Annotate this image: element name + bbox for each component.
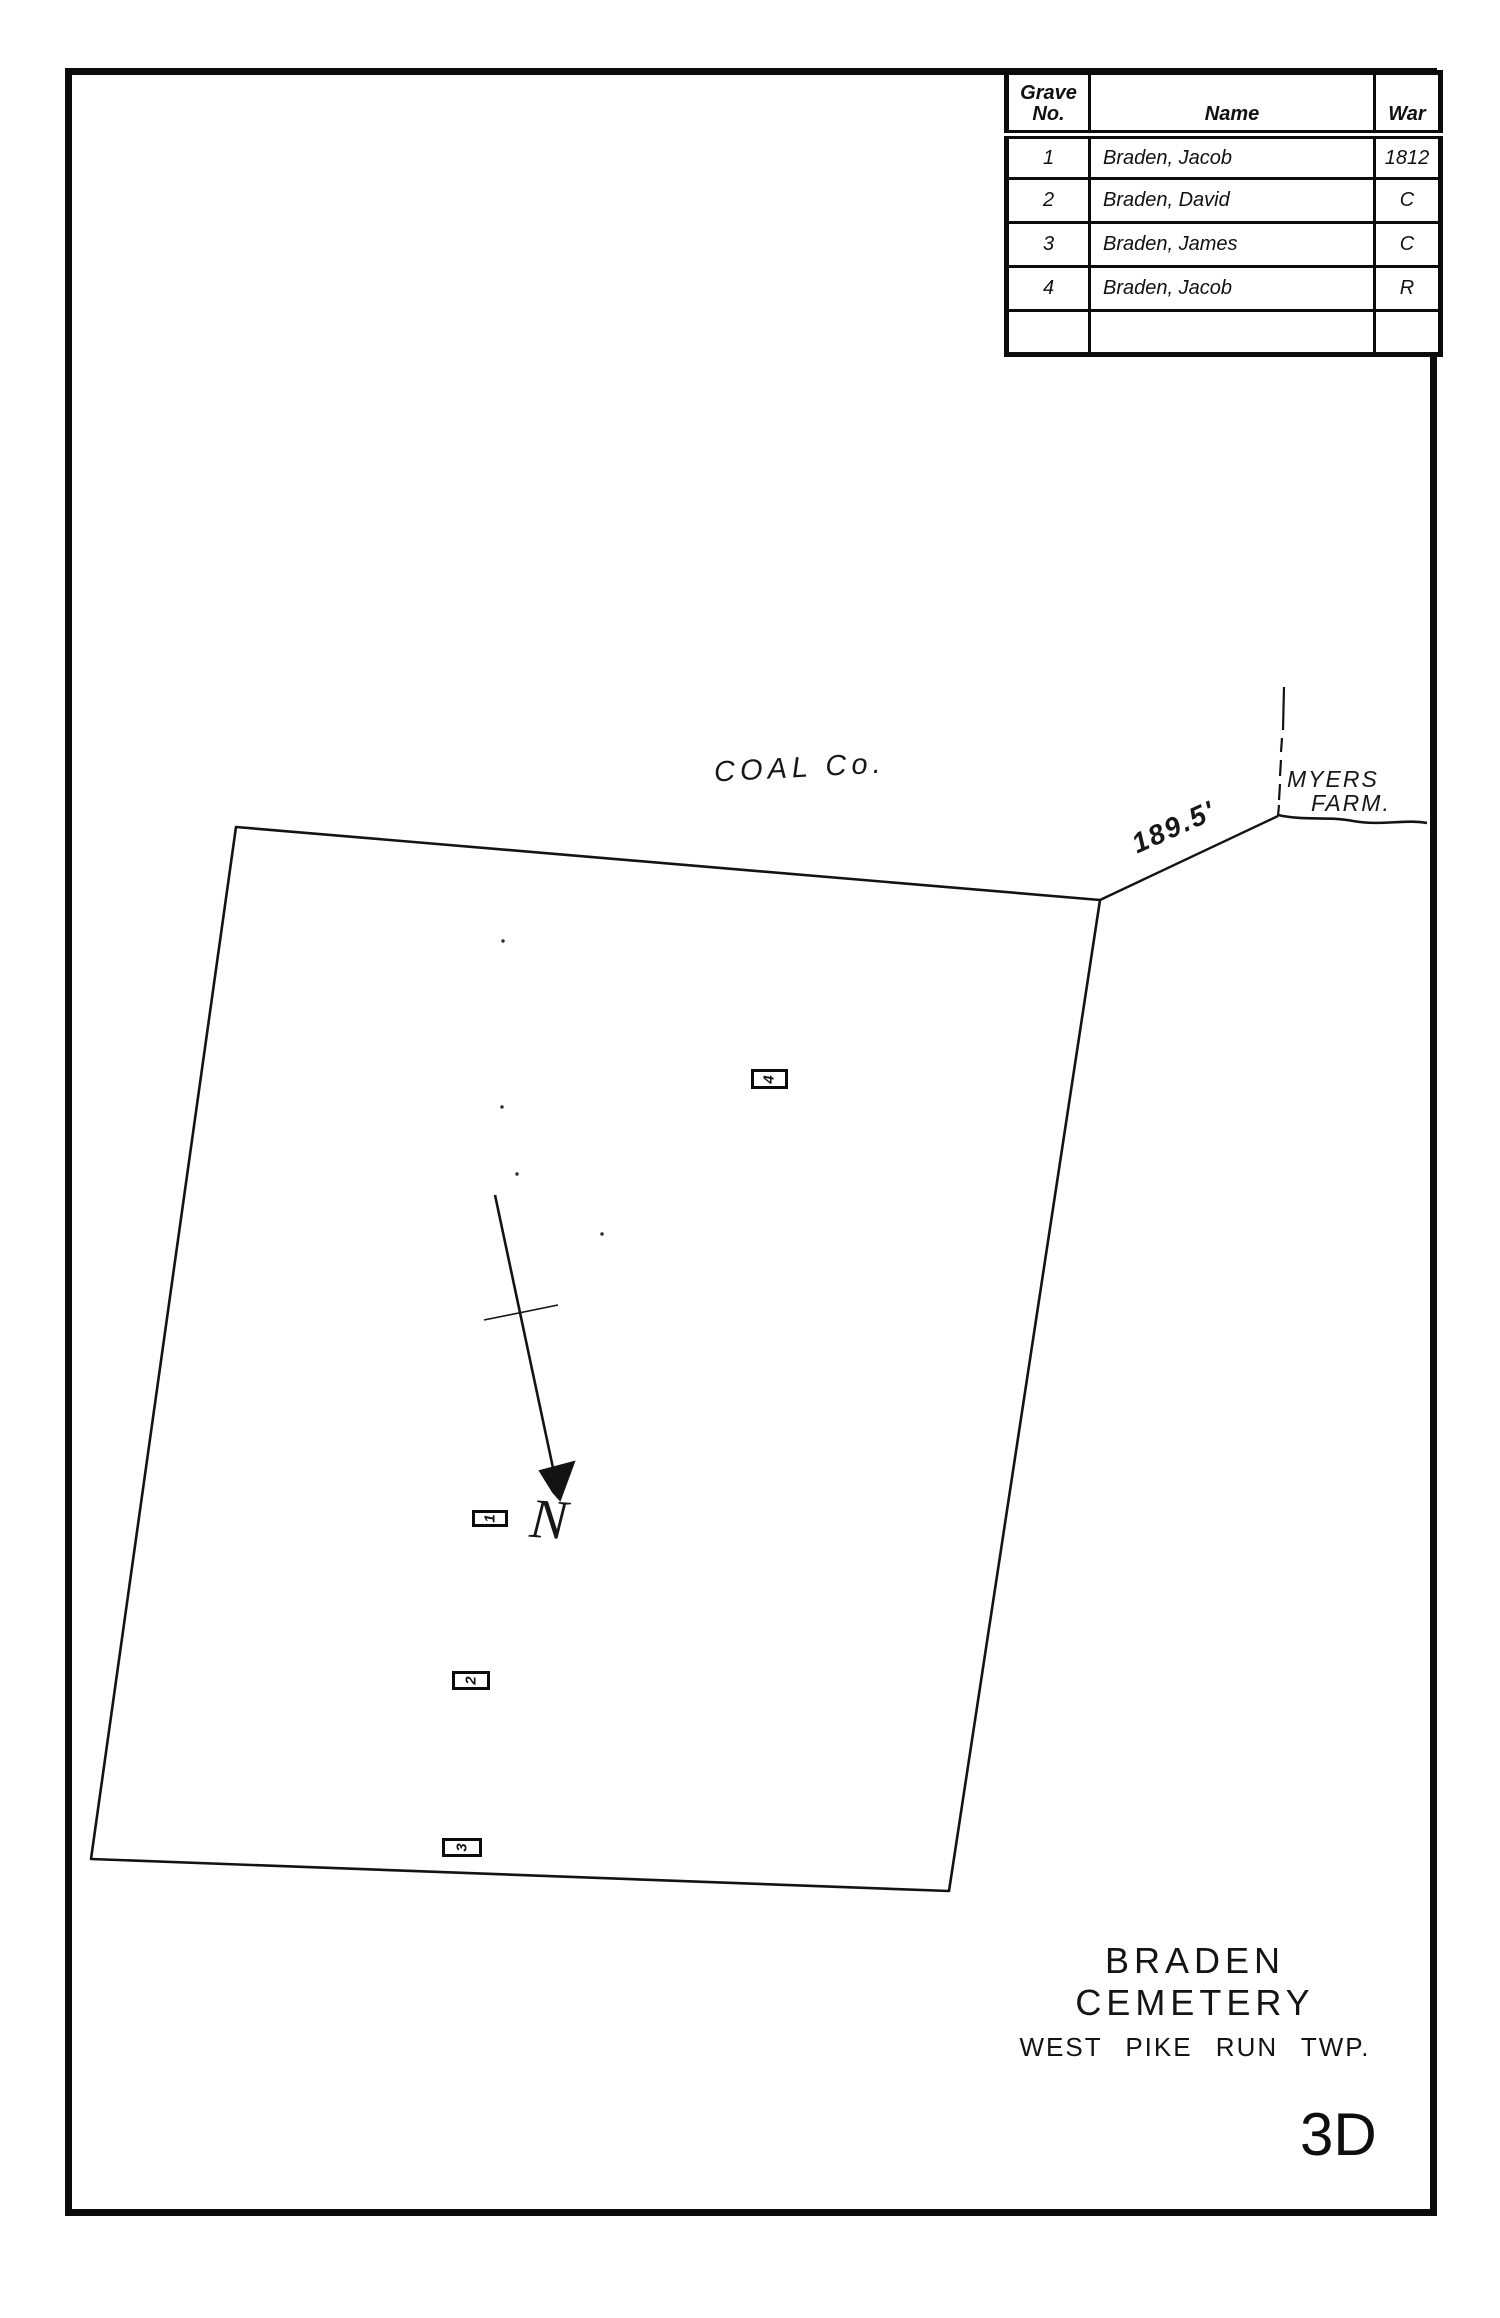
grave-table-row: 4 Braden, Jacob R (1007, 267, 1441, 311)
neighbor-label-myers: MYERS (1287, 766, 1379, 793)
header-grave-word: Grave (1020, 82, 1077, 104)
grave-marker-number: 2 (464, 1676, 479, 1684)
grave-table-row: 1 Braden, Jacob 1812 (1007, 135, 1441, 179)
grave-marker-number: 1 (483, 1514, 498, 1522)
grave-war-cell (1375, 311, 1441, 355)
grave-war-cell: C (1375, 223, 1441, 267)
grave-marker-3: 3 (442, 1838, 482, 1857)
grave-marker-4: 4 (751, 1069, 788, 1089)
grave-table: Grave No. Name War 1 Braden, Jacob 1812 … (1004, 70, 1443, 357)
grave-marker-number: 3 (455, 1843, 470, 1851)
grave-table-header-row: Grave No. Name War (1007, 73, 1441, 135)
column-header-war: War (1375, 73, 1441, 135)
north-arrow-label: N (528, 1487, 570, 1553)
grave-marker-2: 2 (452, 1671, 490, 1690)
grave-no-cell: 2 (1007, 179, 1090, 223)
grave-war-cell: C (1375, 179, 1441, 223)
grave-no-cell: 4 (1007, 267, 1090, 311)
neighbor-label-farm: FARM. (1311, 790, 1391, 817)
grave-war-cell: 1812 (1375, 135, 1441, 179)
grave-name-cell: Braden, Jacob (1090, 135, 1375, 179)
grave-marker-number: 4 (762, 1075, 777, 1083)
grave-name-cell: Braden, David (1090, 179, 1375, 223)
header-no-word: No. (1032, 103, 1064, 125)
title-block: BRADEN CEMETERY WEST PIKE RUN TWP. (995, 1940, 1395, 2063)
grave-table-row: 2 Braden, David C (1007, 179, 1441, 223)
grave-table-row-empty (1007, 311, 1441, 355)
page-border (65, 68, 1437, 2216)
grave-no-cell (1007, 311, 1090, 355)
grave-table-row: 3 Braden, James C (1007, 223, 1441, 267)
sheet-number: 3D (1300, 2100, 1377, 2169)
grave-name-cell: Braden, James (1090, 223, 1375, 267)
grave-name-cell (1090, 311, 1375, 355)
column-header-name: Name (1090, 73, 1375, 135)
column-header-grave-no: Grave No. (1007, 73, 1090, 135)
grave-marker-1: 1 (472, 1510, 508, 1527)
grave-name-cell: Braden, Jacob (1090, 267, 1375, 311)
grave-no-cell: 1 (1007, 135, 1090, 179)
grave-no-cell: 3 (1007, 223, 1090, 267)
grave-war-cell: R (1375, 267, 1441, 311)
cemetery-title: BRADEN CEMETERY (995, 1940, 1395, 2024)
township-subtitle: WEST PIKE RUN TWP. (995, 2032, 1395, 2063)
cemetery-plat-sheet: Grave No. Name War 1 Braden, Jacob 1812 … (0, 0, 1500, 2318)
